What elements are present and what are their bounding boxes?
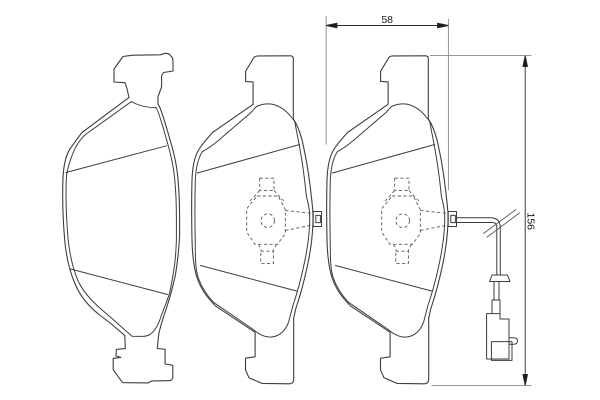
svg-text:156: 156 (524, 213, 536, 231)
svg-text:58: 58 (381, 14, 393, 26)
